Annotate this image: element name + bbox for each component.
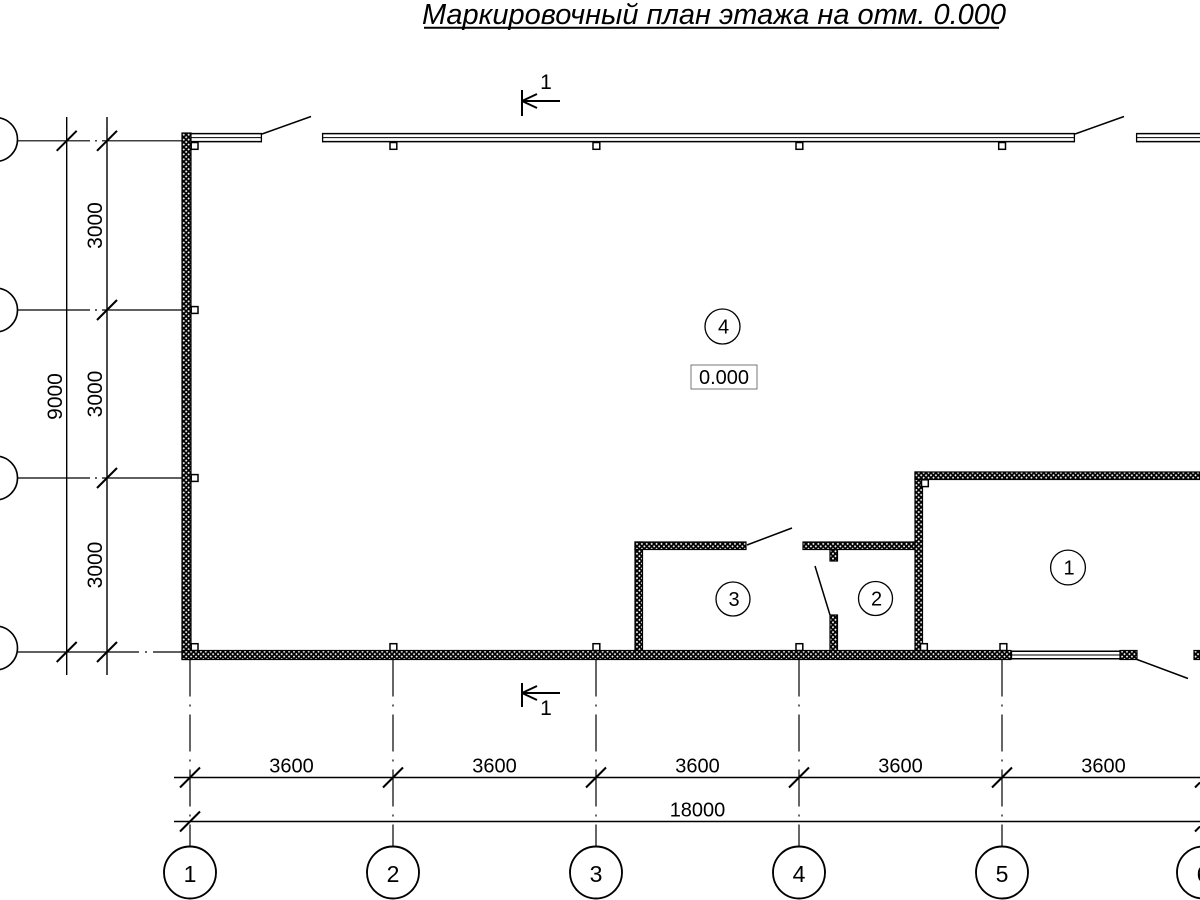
svg-text:4: 4 (718, 317, 729, 339)
svg-text:3600: 3600 (675, 756, 720, 778)
svg-text:1: 1 (184, 861, 197, 887)
svg-text:9000: 9000 (44, 373, 67, 420)
svg-text:1: 1 (540, 71, 552, 94)
svg-text:2: 2 (871, 589, 882, 611)
svg-text:2: 2 (387, 861, 400, 887)
svg-text:3000: 3000 (84, 542, 107, 589)
svg-text:3: 3 (590, 861, 603, 887)
svg-text:6: 6 (1197, 861, 1200, 887)
svg-text:1: 1 (540, 697, 552, 720)
svg-text:Маркировочный план этажа на от: Маркировочный план этажа на отм. 0.000 (422, 0, 1006, 31)
svg-text:3600: 3600 (878, 756, 923, 778)
svg-text:3600: 3600 (472, 756, 517, 778)
svg-text:3000: 3000 (84, 202, 107, 249)
svg-text:3600: 3600 (269, 756, 314, 778)
svg-text:18000: 18000 (670, 800, 726, 822)
svg-text:3600: 3600 (1081, 756, 1126, 778)
svg-text:4: 4 (793, 861, 806, 887)
svg-text:5: 5 (996, 861, 1009, 887)
svg-text:1: 1 (1063, 558, 1074, 580)
svg-text:0.000: 0.000 (699, 367, 749, 389)
svg-text:3: 3 (728, 589, 739, 611)
svg-text:3000: 3000 (84, 371, 107, 418)
